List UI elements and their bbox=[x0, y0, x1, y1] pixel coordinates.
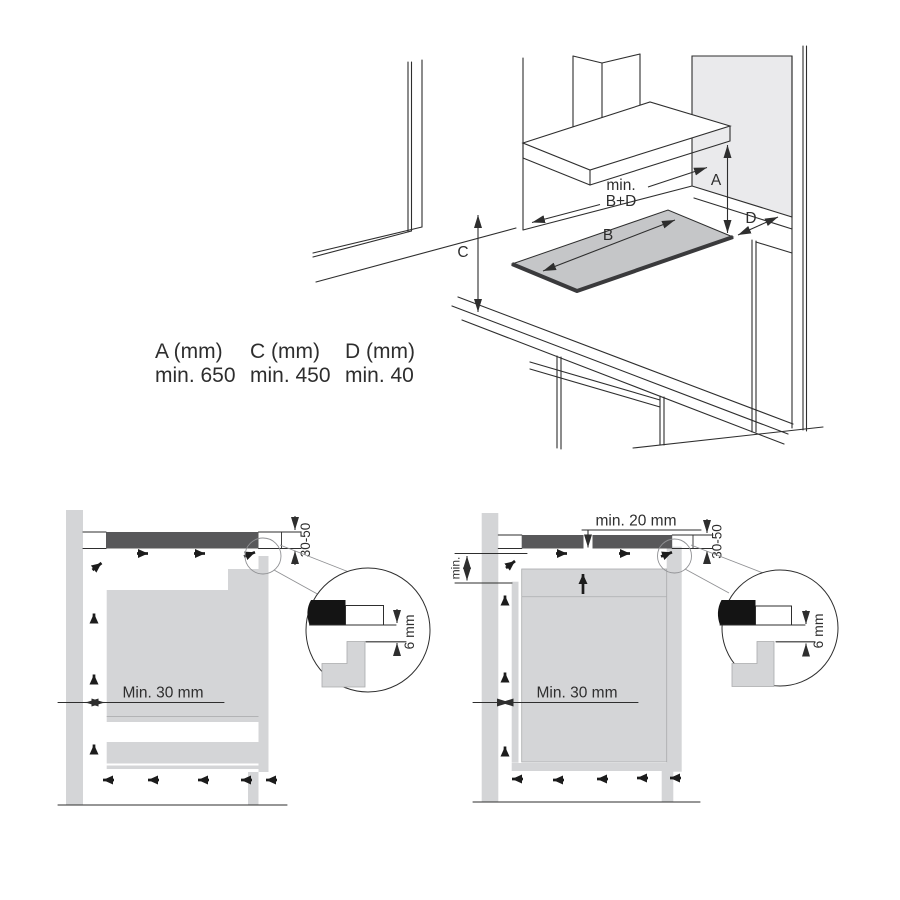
table-column-a: A (mm) min. 650 bbox=[155, 340, 250, 388]
label-min-20: min. 20 mm bbox=[596, 513, 677, 530]
column-value: min. 650 bbox=[155, 364, 250, 388]
dimension-30-50: 30-50 bbox=[295, 516, 313, 565]
label-min: min. bbox=[606, 177, 635, 194]
label-c: C bbox=[457, 244, 468, 261]
cabinet-partition bbox=[512, 582, 519, 763]
hob-cross-section bbox=[522, 535, 673, 549]
bottom-shelf bbox=[512, 763, 677, 771]
table-column-d: D (mm) min. 40 bbox=[345, 340, 430, 388]
hob-edge-detail bbox=[307, 600, 345, 625]
wall-bar bbox=[66, 510, 83, 805]
label-b: B bbox=[603, 227, 613, 244]
cabinet-side-panel bbox=[667, 547, 682, 772]
hob-surface bbox=[512, 210, 733, 291]
column-header: D (mm) bbox=[345, 340, 430, 364]
installation-diagram: min. B+D A B C D 30-50 bbox=[0, 0, 900, 900]
table-column-c: C (mm) min. 450 bbox=[250, 340, 345, 388]
detail-callout: 6 mm bbox=[245, 538, 430, 692]
label-6mm: 6 mm bbox=[810, 614, 826, 649]
label-min-30: Min. 30 mm bbox=[537, 685, 618, 702]
hob-body-detail bbox=[756, 606, 792, 625]
label-30-50: 30-50 bbox=[710, 524, 725, 559]
column-value: min. 450 bbox=[250, 364, 345, 388]
label-b-plus-d: B+D bbox=[606, 193, 637, 210]
section-left: 30-50 Min. 30 mm bbox=[58, 510, 430, 805]
rear-wall-panel bbox=[692, 56, 792, 217]
column-value: min. 40 bbox=[345, 364, 430, 388]
detail-callout: 6 mm bbox=[658, 539, 839, 687]
label-min-abbrev: min. bbox=[449, 557, 463, 580]
label-30-50: 30-50 bbox=[298, 523, 313, 558]
column-header: A (mm) bbox=[155, 340, 250, 364]
cabinet-side-panel bbox=[259, 556, 269, 772]
hob-body-detail bbox=[346, 606, 384, 626]
label-d: D bbox=[745, 210, 756, 227]
hob-edge-detail bbox=[718, 600, 756, 625]
wall-bar bbox=[482, 513, 499, 802]
section-right: min. 20 mm min. 30-50 Min. 30 mm bbox=[449, 513, 839, 803]
plinth-support bbox=[248, 772, 259, 805]
label-6mm: 6 mm bbox=[401, 615, 417, 650]
clearance-table: A (mm) min. 650 C (mm) min. 450 D (mm) m… bbox=[155, 340, 430, 388]
label-a: A bbox=[711, 172, 722, 189]
label-min-30: Min. 30 mm bbox=[123, 685, 204, 702]
appliance-box bbox=[522, 569, 667, 762]
plinth-support bbox=[662, 771, 674, 802]
hob-installation-diagram-page: min. B+D A B C D 30-50 bbox=[0, 0, 900, 900]
kitchen-perspective: min. B+D A B C D bbox=[313, 46, 823, 449]
bottom-shelf bbox=[107, 766, 259, 770]
drawer-front bbox=[107, 742, 259, 764]
dimension-d bbox=[738, 217, 778, 235]
hob-cross-section bbox=[106, 532, 259, 549]
column-header: C (mm) bbox=[250, 340, 345, 364]
